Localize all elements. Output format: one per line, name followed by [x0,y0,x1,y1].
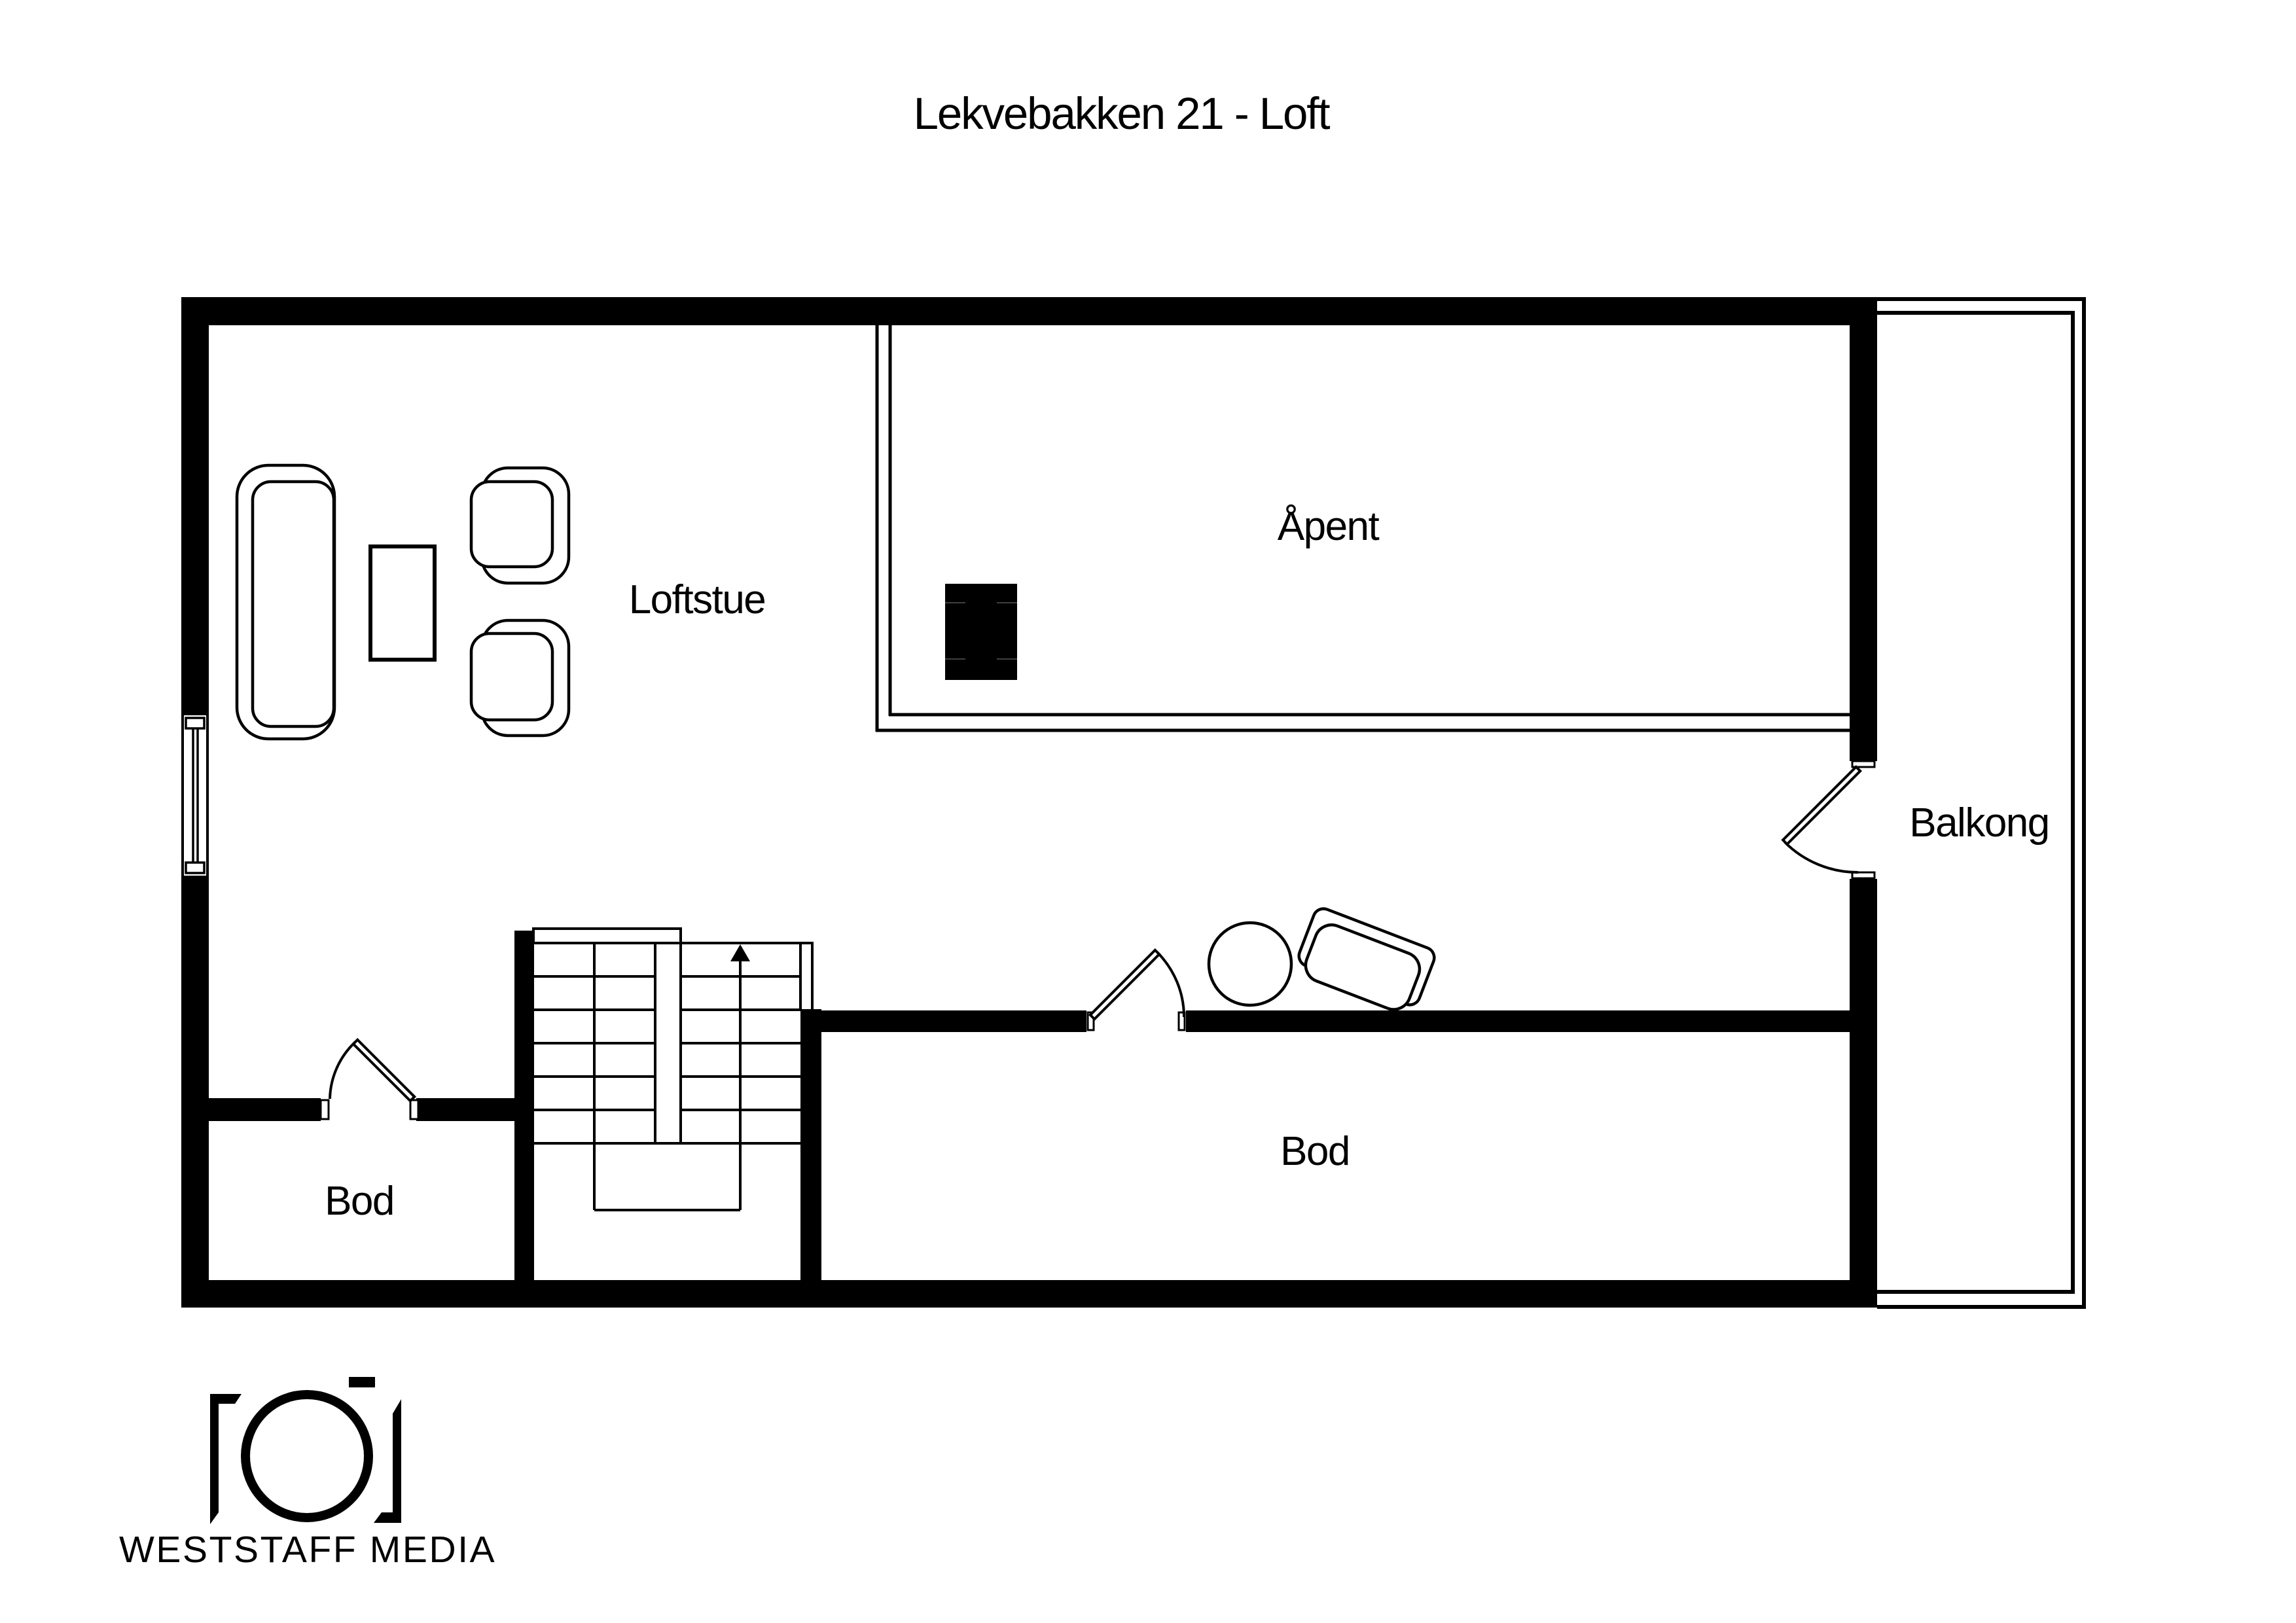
svg-text:Balkong: Balkong [1909,800,2049,846]
svg-text:Loftstue: Loftstue [629,577,766,622]
svg-text:Bod: Bod [325,1179,394,1224]
svg-text:Lekvebakken 21 - Loft: Lekvebakken 21 - Loft [914,88,1331,139]
svg-text:Åpent: Åpent [1278,504,1380,549]
svg-text:WESTSTAFF MEDIA: WESTSTAFF MEDIA [119,1529,496,1571]
svg-text:Bod: Bod [1280,1129,1350,1174]
